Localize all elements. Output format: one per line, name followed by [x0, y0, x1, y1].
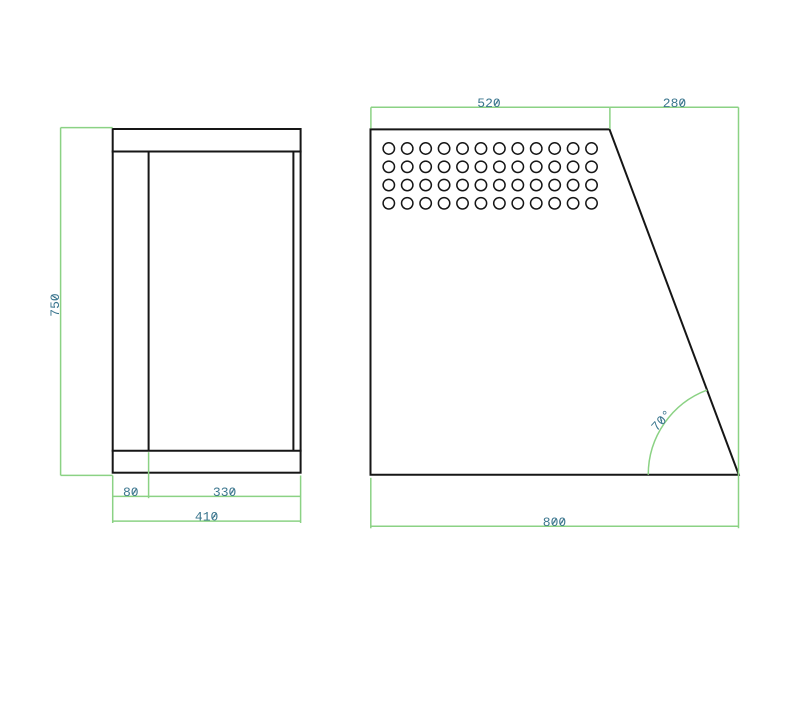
svg-text:280: 280: [663, 96, 686, 111]
svg-text:750: 750: [48, 293, 63, 316]
svg-text:330: 330: [213, 485, 236, 500]
svg-text:520: 520: [477, 96, 500, 111]
svg-text:800: 800: [543, 515, 566, 530]
svg-text:80: 80: [123, 485, 139, 500]
svg-text:410: 410: [195, 509, 218, 524]
